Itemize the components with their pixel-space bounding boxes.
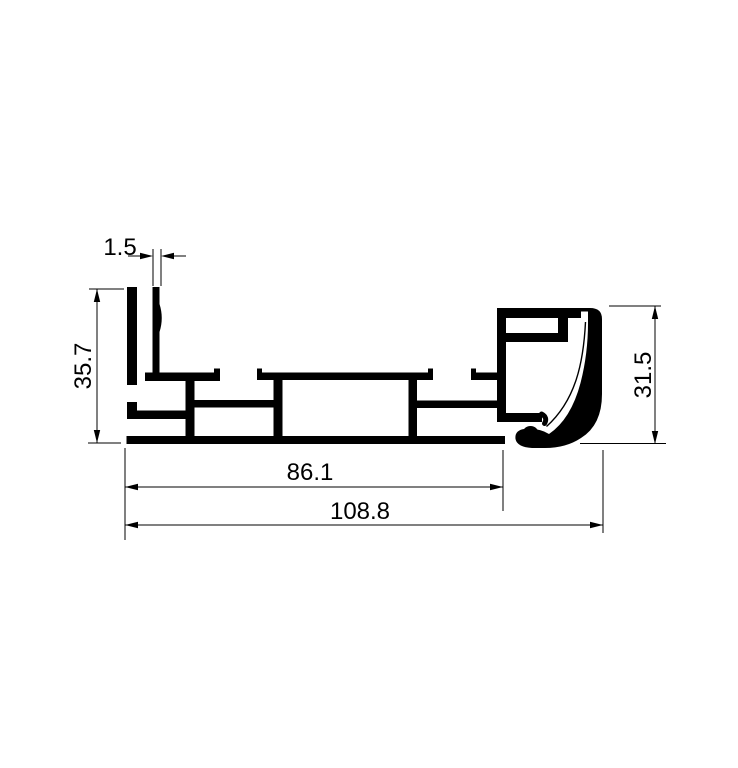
dimension-fin-thickness: 1.5	[103, 234, 186, 286]
arrowhead	[94, 289, 100, 302]
dimension-left-height: 35.7	[70, 289, 124, 443]
drawing-sheet: 1.5 35.7 31.5 86.1 108.8	[0, 0, 738, 768]
arrowhead	[490, 484, 503, 490]
flange-left-end-lip	[214, 369, 220, 374]
web-middle-right	[409, 380, 418, 438]
glazing-fin	[153, 287, 162, 378]
bottom-left-bar	[127, 411, 188, 420]
flange-middle-right-lip	[428, 369, 433, 374]
gasket-notch	[581, 312, 588, 319]
dim-label-overall-width: 108.8	[330, 498, 390, 525]
arrowhead	[590, 522, 603, 528]
left-outer-wall	[127, 287, 137, 385]
flange-right-end-lip	[471, 369, 476, 374]
top-flange-left	[145, 373, 220, 382]
arrowhead	[94, 430, 100, 443]
profile-drawing-svg: 1.5 35.7 31.5 86.1 108.8	[0, 0, 738, 768]
seal-bulb	[522, 426, 539, 443]
profile-geometry	[127, 287, 603, 448]
right-chamber-bottom-wall	[497, 333, 568, 342]
web-left	[186, 380, 195, 438]
right-outer-wall-and-foot	[497, 308, 602, 448]
right-chamber-left-wall	[497, 308, 506, 422]
top-flange-middle	[257, 373, 433, 381]
bottom-plate	[127, 436, 506, 444]
dim-label-right-height: 31.5	[630, 352, 657, 399]
arrowhead	[125, 522, 138, 528]
dim-label-left-height: 35.7	[70, 343, 97, 390]
seal-hook	[542, 414, 546, 424]
mid-rib-left	[194, 400, 274, 408]
dim-label-inner-width: 86.1	[287, 459, 334, 486]
arrowhead	[125, 484, 138, 490]
top-flange-right	[471, 373, 499, 381]
dim-label-fin-thickness: 1.5	[103, 234, 136, 261]
dimension-inner-width: 86.1	[125, 448, 503, 540]
dimension-overall-width: 108.8	[125, 450, 603, 533]
right-bottom-bar	[497, 413, 542, 422]
arrowhead	[652, 431, 658, 444]
flange-middle-left-lip	[257, 369, 262, 374]
web-middle-left	[274, 380, 283, 438]
mid-rib-right	[417, 401, 506, 409]
arrowhead	[161, 253, 174, 259]
arrowhead	[652, 306, 658, 319]
arrowhead	[140, 253, 153, 259]
